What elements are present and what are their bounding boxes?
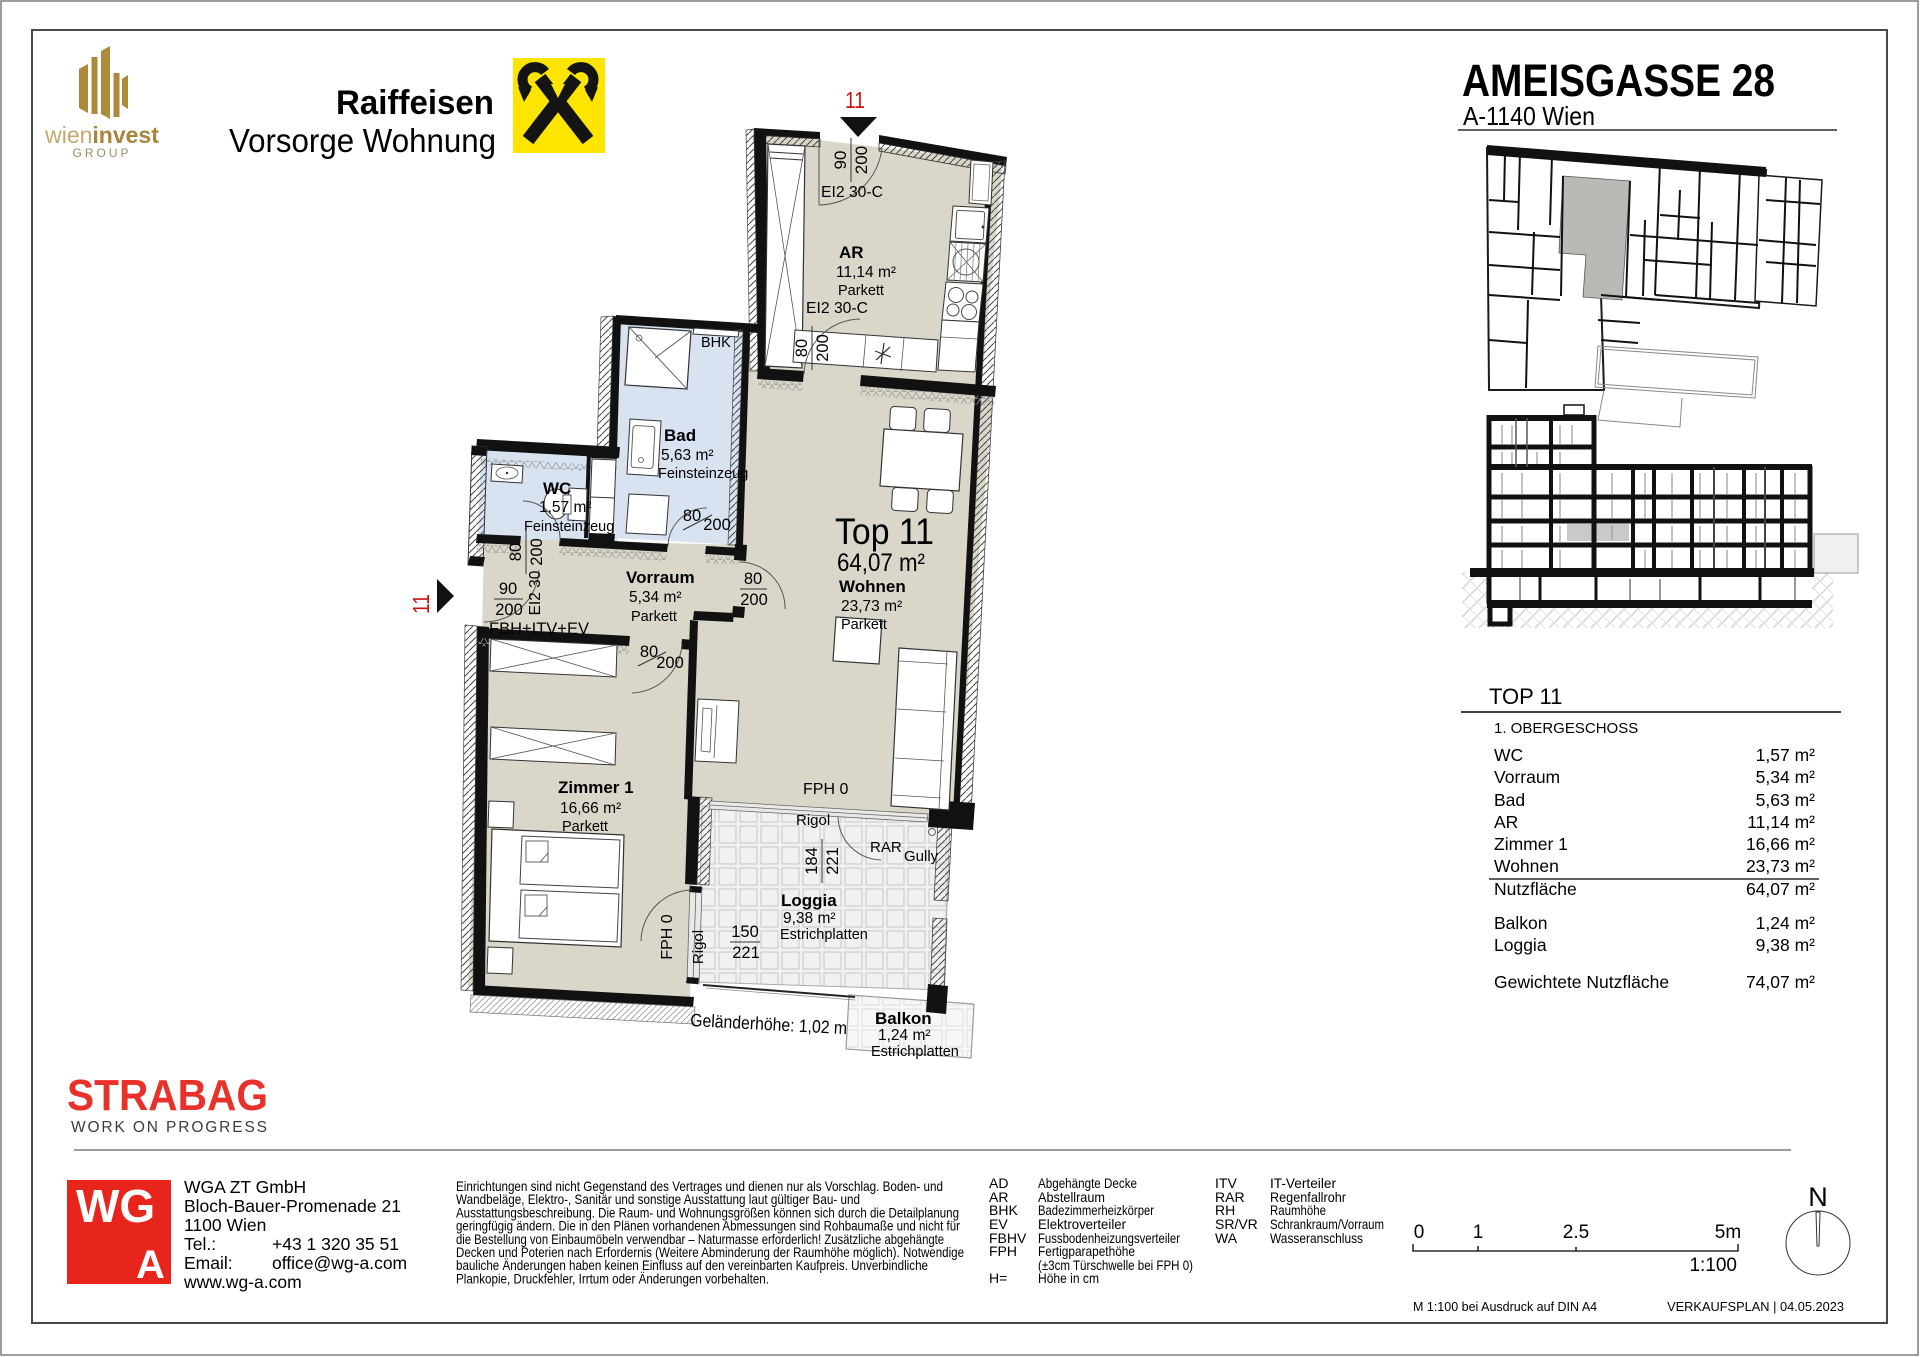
svg-text:Rigol: Rigol	[690, 930, 707, 964]
svg-text:WGA ZT GmbH: WGA ZT GmbH	[184, 1177, 306, 1197]
svg-text:11: 11	[408, 594, 434, 614]
svg-text:1. OBERGESCHOSS: 1. OBERGESCHOSS	[1494, 720, 1638, 737]
svg-text:1100 Wien: 1100 Wien	[184, 1215, 266, 1235]
svg-text:5m: 5m	[1715, 1222, 1741, 1243]
svg-text:AMEISGASSE 28: AMEISGASSE 28	[1462, 55, 1775, 106]
svg-text:Estrichplatten: Estrichplatten	[780, 927, 868, 943]
svg-text:wieninvest: wieninvest	[44, 122, 159, 148]
svg-text:+43 1 320 35 51: +43 1 320 35 51	[272, 1234, 399, 1254]
svg-text:WORK ON PROGRESS: WORK ON PROGRESS	[71, 1119, 267, 1136]
svg-text:office@wg-a.com: office@wg-a.com	[272, 1253, 407, 1273]
svg-text:80: 80	[744, 570, 762, 588]
svg-text:184: 184	[803, 847, 821, 875]
svg-text:Bad: Bad	[664, 426, 696, 445]
svg-text:Wohnen: Wohnen	[839, 577, 906, 596]
svg-text:FPH 0: FPH 0	[659, 914, 676, 959]
svg-text:2.5: 2.5	[1563, 1222, 1589, 1243]
svg-text:23,73 m²: 23,73 m²	[841, 598, 902, 615]
svg-text:Rigol: Rigol	[796, 812, 830, 829]
svg-text:1:100: 1:100	[1689, 1255, 1737, 1276]
svg-text:Balkon: Balkon	[1494, 913, 1548, 933]
svg-text:Bad: Bad	[1494, 790, 1525, 810]
svg-text:221: 221	[824, 847, 842, 875]
svg-text:STRABAG: STRABAG	[67, 1071, 268, 1120]
svg-text:200: 200	[740, 591, 768, 609]
svg-text:5,34 m²: 5,34 m²	[1756, 767, 1815, 787]
svg-text:1,24 m²: 1,24 m²	[1756, 913, 1815, 933]
svg-text:90: 90	[831, 151, 850, 170]
svg-text:11: 11	[845, 87, 865, 113]
svg-text:Nutzfläche: Nutzfläche	[1494, 879, 1577, 899]
svg-text:0: 0	[1414, 1222, 1425, 1243]
svg-text:64,07 m²: 64,07 m²	[1746, 879, 1815, 899]
svg-text:Balkon: Balkon	[875, 1009, 932, 1028]
svg-text:200: 200	[656, 654, 684, 672]
svg-text:Tel.:: Tel.:	[184, 1234, 216, 1254]
svg-text:74,07 m²: 74,07 m²	[1746, 972, 1815, 992]
svg-text:Geländerhöhe: 1,02 m: Geländerhöhe: 1,02 m	[690, 1010, 848, 1038]
svg-text:1,24 m²: 1,24 m²	[878, 1027, 931, 1044]
svg-text:www.wg-a.com: www.wg-a.com	[183, 1272, 302, 1292]
svg-text:A-1140 Wien: A-1140 Wien	[1463, 101, 1595, 131]
svg-text:200: 200	[814, 334, 832, 362]
svg-text:WC: WC	[1494, 745, 1523, 765]
svg-text:23,73 m²: 23,73 m²	[1746, 856, 1815, 876]
svg-text:EI2 30: EI2 30	[527, 570, 544, 615]
svg-text:5,63 m²: 5,63 m²	[661, 447, 714, 464]
svg-text:5,63 m²: 5,63 m²	[1756, 790, 1815, 810]
svg-text:221: 221	[732, 944, 760, 962]
svg-text:Zimmer 1: Zimmer 1	[1494, 834, 1568, 854]
svg-text:200: 200	[528, 538, 546, 566]
svg-text:150: 150	[731, 923, 759, 941]
svg-text:Email:: Email:	[184, 1253, 233, 1273]
svg-text:BHK: BHK	[701, 335, 731, 351]
svg-text:1: 1	[1473, 1222, 1484, 1243]
svg-text:16,66 m²: 16,66 m²	[1746, 834, 1815, 854]
svg-text:Loggia: Loggia	[781, 891, 837, 910]
svg-text:FPH 0: FPH 0	[803, 781, 848, 798]
svg-text:Loggia: Loggia	[1494, 935, 1547, 955]
svg-text:WA: WA	[1215, 1230, 1238, 1246]
svg-text:Gewichtete Nutzfläche: Gewichtete Nutzfläche	[1494, 972, 1669, 992]
svg-text:Parkett: Parkett	[838, 283, 884, 299]
svg-text:WC: WC	[543, 479, 571, 498]
svg-text:200: 200	[703, 516, 731, 534]
svg-text:VERKAUFSPLAN | 04.05.2023: VERKAUFSPLAN | 04.05.2023	[1667, 1299, 1844, 1314]
svg-text:RAR: RAR	[870, 839, 902, 856]
svg-text:Wasseranschluss: Wasseranschluss	[1270, 1230, 1363, 1246]
svg-text:N: N	[1808, 1182, 1828, 1212]
svg-text:1,57 m²: 1,57 m²	[1756, 745, 1815, 765]
svg-text:11,14 m²: 11,14 m²	[836, 264, 896, 281]
svg-text:EI2 30-C: EI2 30-C	[806, 300, 868, 317]
svg-text:Parkett: Parkett	[562, 819, 608, 835]
svg-text:AR: AR	[1494, 812, 1518, 832]
svg-text:M 1:100 bei Ausdruck auf DIN A: M 1:100 bei Ausdruck auf DIN A4	[1413, 1300, 1597, 1314]
svg-text:Höhe in cm: Höhe in cm	[1038, 1270, 1099, 1286]
svg-text:GROUP: GROUP	[72, 146, 131, 160]
svg-text:Plankopie, Druckfehler, Irrtum: Plankopie, Druckfehler, Irrtum oder Ände…	[456, 1270, 769, 1286]
svg-text:FBH+ITV+EV: FBH+ITV+EV	[489, 620, 589, 638]
svg-text:Parkett: Parkett	[841, 617, 887, 633]
svg-text:H=: H=	[989, 1270, 1007, 1286]
svg-text:Bloch-Bauer-Promenade 21: Bloch-Bauer-Promenade 21	[184, 1196, 401, 1216]
svg-text:AR: AR	[839, 243, 864, 262]
svg-text:200: 200	[852, 146, 871, 174]
svg-text:Wohnen: Wohnen	[1494, 856, 1559, 876]
svg-text:Feinsteinzeug: Feinsteinzeug	[658, 466, 748, 482]
svg-text:5,34 m²: 5,34 m²	[629, 589, 682, 606]
svg-text:64,07 m²: 64,07 m²	[837, 549, 925, 577]
svg-text:EI2 30-C: EI2 30-C	[821, 184, 883, 201]
svg-text:80: 80	[793, 339, 811, 357]
svg-text:Raiffeisen: Raiffeisen	[336, 84, 494, 122]
svg-text:Zimmer 1: Zimmer 1	[558, 778, 634, 797]
svg-text:Vorsorge Wohnung: Vorsorge Wohnung	[229, 122, 496, 159]
svg-text:16,66 m²: 16,66 m²	[560, 800, 621, 817]
svg-text:200: 200	[495, 601, 523, 619]
svg-text:1,57 m²: 1,57 m²	[539, 499, 592, 516]
svg-text:FPH: FPH	[989, 1243, 1017, 1259]
svg-text:9,38 m²: 9,38 m²	[783, 910, 836, 927]
svg-text:80: 80	[507, 543, 525, 561]
svg-text:Estrichplatten: Estrichplatten	[871, 1044, 959, 1060]
svg-text:Feinsteinzeug: Feinsteinzeug	[524, 519, 614, 535]
svg-text:11,14 m²: 11,14 m²	[1747, 812, 1815, 832]
svg-text:90: 90	[499, 580, 517, 598]
svg-text:WG: WG	[76, 1180, 155, 1232]
svg-text:Top 11: Top 11	[835, 511, 934, 552]
svg-text:9,38 m²: 9,38 m²	[1756, 935, 1815, 955]
svg-text:Parkett: Parkett	[631, 609, 677, 625]
svg-text:Gully: Gully	[904, 848, 939, 865]
svg-text:A: A	[136, 1243, 165, 1287]
svg-text:Vorraum: Vorraum	[1494, 767, 1560, 787]
svg-text:TOP 11: TOP 11	[1489, 684, 1562, 709]
svg-text:Vorraum: Vorraum	[626, 568, 695, 587]
